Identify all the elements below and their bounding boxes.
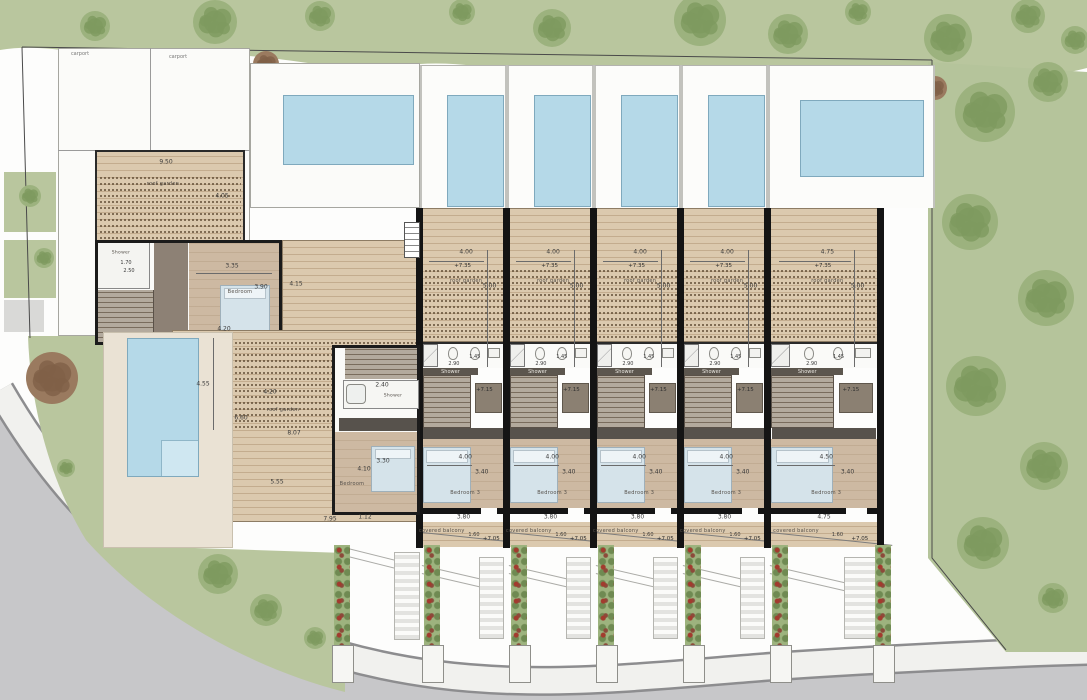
dim-label: 5.00 [570,283,583,290]
dim-label: 4.20 [217,326,230,333]
toilet [535,347,545,360]
party-wall [877,208,884,548]
room-label: Bedroom 3 [711,490,741,496]
flower-planter [772,545,788,645]
dim-label: 1.45 [643,354,654,360]
bathtub [346,384,366,404]
sink [488,348,500,358]
staircase [684,375,733,428]
level-label: +7.35 [454,263,471,269]
toilet [804,347,814,360]
dim-label: 4.00 [720,454,733,461]
sink [749,348,761,358]
dim-label: 1.60 [468,532,479,538]
dim-label: 4.75 [817,514,830,521]
staircase [597,375,646,428]
roof-access-ladder [404,222,420,258]
toilet [709,347,719,360]
entry-steps [566,557,591,639]
room-label: Bedroom 3 [811,490,841,496]
hallway [154,243,188,342]
dim-label: 3.80 [544,514,557,521]
dim-label: 4.50 [820,454,833,461]
bath-wall: Shower [510,368,566,375]
dim-label: 3.40 [736,469,749,476]
carport-label: carport [71,51,89,57]
dim-label: 5.00 [744,283,757,290]
balcony-label: covered balcony [773,528,819,534]
annex-lintel [339,418,417,431]
dim-label: 4.75 [821,249,834,256]
shower-label: Shower [441,369,460,375]
tree [19,185,41,207]
tree [924,14,972,62]
entry-steps [653,557,678,639]
annex-stair [345,348,417,379]
tree [193,0,237,44]
flower-planter [424,545,440,645]
dim-line [487,250,488,367]
west-pool [127,338,199,477]
dim-label: 2.50 [123,268,134,274]
dim-line [514,465,559,466]
balcony-label: covered balcony [593,528,639,534]
tree [942,194,998,250]
bath-wall: Shower [597,368,653,375]
dim-label: 2.90 [709,361,720,367]
dim-label: 4.20 [263,389,276,396]
lintel [510,428,590,439]
room-label: Bedroom [340,481,365,487]
balcony-label: covered balcony [680,528,726,534]
staircase [510,375,559,428]
covered-balcony [420,522,507,547]
tree [1028,62,1068,102]
room-label: Bedroom [228,289,253,295]
party-wall [590,208,597,548]
swimming-pool [447,95,504,207]
flower-planter [598,545,614,645]
lintel [423,428,503,439]
balcony-label: covered balcony [506,528,552,534]
rear-wall [420,508,481,514]
level-label: +7.05 [483,536,500,542]
site-plan: carport carport 9.50 roof garden 4.05 Sh… [0,0,1087,700]
sink [662,348,674,358]
dim-label: 4.00 [459,454,472,461]
swimming-pool [800,100,924,177]
dim-label: 1.60 [555,532,566,538]
shower-stall [423,344,438,367]
roof-garden-label: roof garden [450,278,482,284]
dim-label: 4.00 [633,454,646,461]
left-house-pool [283,95,414,165]
dim-label: 5.55 [270,479,283,486]
dim-label: 1.45 [833,354,844,360]
tree [955,82,1015,142]
lintel [684,428,764,439]
toilet [622,347,632,360]
dim-line [779,261,851,262]
tree [1011,0,1045,33]
flower-planter [334,545,350,645]
sink [855,348,870,358]
sink [575,348,587,358]
dim-label: 4.00 [546,454,559,461]
tree [1018,270,1074,326]
tree [449,0,475,25]
flower-planter [875,545,891,645]
level-label: +7.35 [541,263,558,269]
dim-label: 4.00 [633,249,646,256]
shower-stall [684,344,699,367]
level-label: +7.05 [570,536,587,542]
dim-label: 3.80 [457,514,470,521]
tree [250,594,282,626]
planter-box [596,645,618,683]
dim-line [574,250,575,367]
dim-line [690,261,746,262]
dim-line [748,250,749,367]
level-label: +7.15 [842,387,859,393]
party-wall [503,208,510,548]
party-wall [677,208,684,548]
dim-label: 5.00 [657,283,670,290]
tree [1038,583,1068,613]
rear-wall [681,508,742,514]
shower-label: Shower [702,369,721,375]
shower-stall [597,344,612,367]
balcony-label: covered balcony [419,528,465,534]
dim-label: 2.40 [375,382,388,389]
bath-wall: Shower [771,368,843,375]
tree [57,459,75,477]
dim-label: 4.55 [196,381,209,388]
dim-label: 3.40 [841,469,854,476]
bath-wall: Shower [684,368,740,375]
dim-label: 4.00 [546,249,559,256]
dim-label: 2.90 [806,361,817,367]
grass-left-strip-2 [4,240,56,298]
roof-garden-label: roof garden [624,278,656,284]
covered-balcony [768,522,880,547]
shower-label: Shower [528,369,547,375]
lintel [772,428,875,439]
dim-label: 3.80 [631,514,644,521]
tree [957,517,1009,569]
carport-divider [150,48,151,150]
bed [371,446,415,492]
dim-label: 3.40 [649,469,662,476]
tree [198,554,238,594]
tree [533,9,571,47]
shower-label: Shower [798,369,817,375]
toilet [448,347,458,360]
entry-steps [479,557,504,639]
roof-garden-label: roof garden [267,407,299,413]
planter-box [770,645,792,683]
lintel [597,428,677,439]
dim-label: 3.80 [718,514,731,521]
tree [768,14,808,54]
dim-line [213,338,214,430]
dim-label: 1.12 [358,514,371,521]
entry-steps [844,557,875,639]
room-label: Bedroom 3 [537,490,567,496]
dim-line [516,261,572,262]
covered-balcony [594,522,681,547]
dim-label: 4.00 [720,249,733,256]
room-label: Shower [384,394,403,399]
tree [80,11,110,41]
dim-label: 4.00 [459,249,472,256]
rear-wall [768,508,846,514]
tree [305,1,335,31]
planter-box [509,645,531,683]
level-label: +7.35 [814,263,831,269]
dim-label: 6.60 [234,415,247,422]
dim-line [661,250,662,367]
dim-label: 4.10 [357,466,370,473]
dim-label: 4.05 [215,193,228,200]
staircase [771,375,834,428]
staircase [423,375,472,428]
entry-steps [394,552,420,640]
dim-label: 8.07 [287,430,300,437]
level-label: +7.15 [476,387,493,393]
dim-label: 9.50 [159,159,172,166]
level-label: +7.15 [650,387,667,393]
dim-line [777,465,835,466]
flower-planter [685,545,701,645]
dim-label: 3.40 [562,469,575,476]
rear-wall [594,508,655,514]
dim-label: 1.45 [469,354,480,360]
tree [34,248,54,268]
dim-label: 2.90 [622,361,633,367]
level-label: +7.15 [737,387,754,393]
dim-label: 4.15 [289,281,302,288]
paving-left [4,300,44,332]
shower-stall [771,344,790,367]
carport-label: carport [169,54,187,60]
dim-label: 1.60 [729,532,740,538]
dim-label: 2.90 [448,361,459,367]
level-label: +7.35 [628,263,645,269]
annex-unit [332,345,420,515]
dim-label: 2.90 [535,361,546,367]
swimming-pool [534,95,591,207]
swimming-pool [708,95,765,207]
dim-label: 3.40 [475,469,488,476]
dim-label: 3.90 [254,284,267,291]
level-label: +7.15 [563,387,580,393]
tree [1020,442,1068,490]
room-label: Bedroom 3 [450,490,480,496]
dim-label: 5.00 [851,283,864,290]
dim-label: 1.70 [120,260,131,266]
rear-wall [507,508,568,514]
bath-wall: Shower [423,368,479,375]
planter-box [873,645,895,683]
room-label: Bedroom 3 [624,490,654,496]
level-label: +7.35 [715,263,732,269]
roof-garden-label: roof garden [711,278,743,284]
shower-label: Shower [615,369,634,375]
level-label: +7.05 [744,536,761,542]
dim-label: 1.60 [832,532,843,538]
dim-line [429,261,485,262]
dim-label: 3.30 [376,458,389,465]
dim-line [688,465,733,466]
covered-balcony [507,522,594,547]
east-deck [282,240,422,332]
planter-box [422,645,444,683]
dim-label: 7.95 [323,516,336,523]
swimming-pool [621,95,678,207]
tree [845,0,871,25]
room-label: Shower [112,251,131,256]
tree [946,356,1006,416]
roof-garden-label: roof garden [811,278,843,284]
planter-box [332,645,354,683]
planter-box [683,645,705,683]
dim-line [854,250,855,367]
level-label: +7.05 [851,536,868,542]
tree [304,627,326,649]
dim-label: 3.35 [225,263,238,270]
dim-line [427,465,472,466]
covered-balcony [681,522,768,547]
grass-right [928,62,1087,652]
dim-label: 1.60 [642,532,653,538]
level-label: +7.05 [657,536,674,542]
shower-stall [510,344,525,367]
dim-label: 5.00 [483,283,496,290]
roof-garden-label: roof garden [537,278,569,284]
pool-step [161,440,198,476]
dim-line [601,465,646,466]
tree-red [26,352,78,404]
roof-garden-label: roof garden [147,181,179,187]
dim-line [603,261,659,262]
dim-label: 1.45 [730,354,741,360]
party-wall [764,208,771,548]
entry-steps [740,557,765,639]
dim-label: 1.45 [556,354,567,360]
flower-planter [511,545,527,645]
